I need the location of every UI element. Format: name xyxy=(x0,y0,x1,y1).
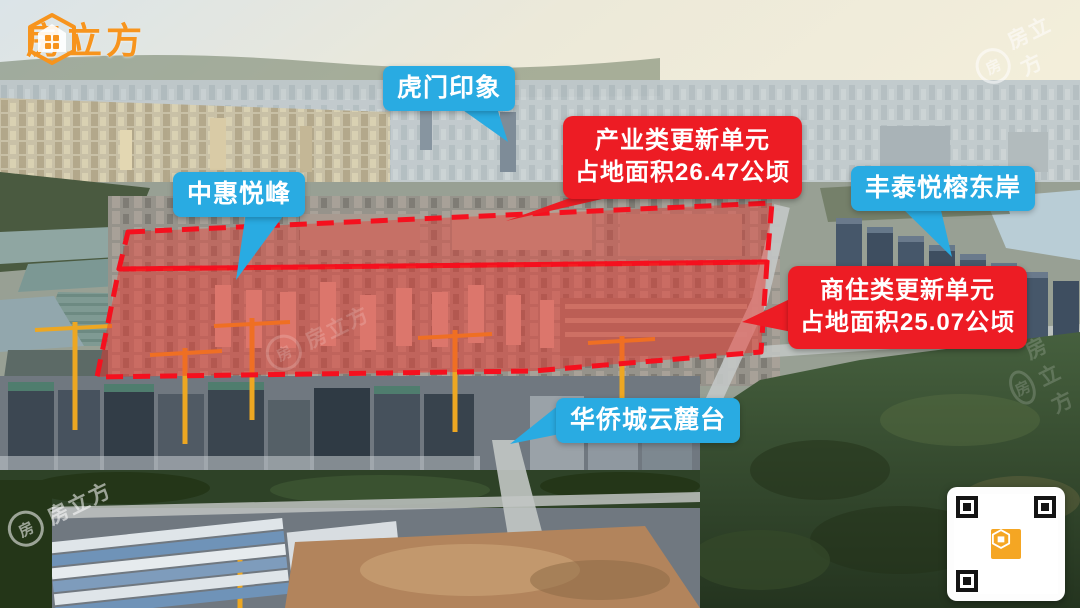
qr-finder-icon xyxy=(956,570,978,592)
qr-center-logo-icon xyxy=(988,526,1024,562)
commercial-label-tail xyxy=(742,298,792,332)
qr-code xyxy=(947,487,1065,601)
watermark: 房 房立方 xyxy=(964,0,1080,101)
watermark: 房 房立方 xyxy=(2,471,118,552)
label-fengtai-yuerong-east-bank: 丰泰悦榕东岸 xyxy=(851,166,1035,211)
qr-finder-icon xyxy=(1034,496,1056,518)
qr-finder-icon xyxy=(956,496,978,518)
label-zhonghui-yuefeng: 中惠悦峰 xyxy=(173,172,305,217)
watermark: 房 房立方 xyxy=(260,295,376,376)
humen-impression-tail xyxy=(460,108,508,142)
commercial-residential-zone-region xyxy=(97,262,767,377)
aerial-map: 房 房立方 房 房立方 房 房立方 房 房立方 虎门印象 中惠悦峰 丰泰悦榕东岸… xyxy=(0,0,1080,608)
watermark-ring-icon: 房 xyxy=(970,42,1017,90)
hexagon-house-logo-icon xyxy=(26,12,78,66)
label-industrial-renewal-unit: 产业类更新单元 占地面积26.47公顷 xyxy=(563,116,802,199)
oct-yunlutai-tail xyxy=(510,404,560,444)
watermark-ring-icon: 房 xyxy=(1004,366,1041,409)
label-commercial-residential-renewal-unit: 商住类更新单元 占地面积25.07公顷 xyxy=(788,266,1027,349)
label-humen-impression: 虎门印象 xyxy=(383,66,515,111)
label-oct-yunlutai: 华侨城云麓台 xyxy=(556,398,740,443)
watermark-ring-icon: 房 xyxy=(2,505,50,553)
brand-logo: 房立方 xyxy=(26,12,146,64)
watermark-ring-icon: 房 xyxy=(260,329,308,377)
zhonghui-yuefeng-tail xyxy=(236,212,286,280)
fengtai-tail xyxy=(900,206,952,257)
